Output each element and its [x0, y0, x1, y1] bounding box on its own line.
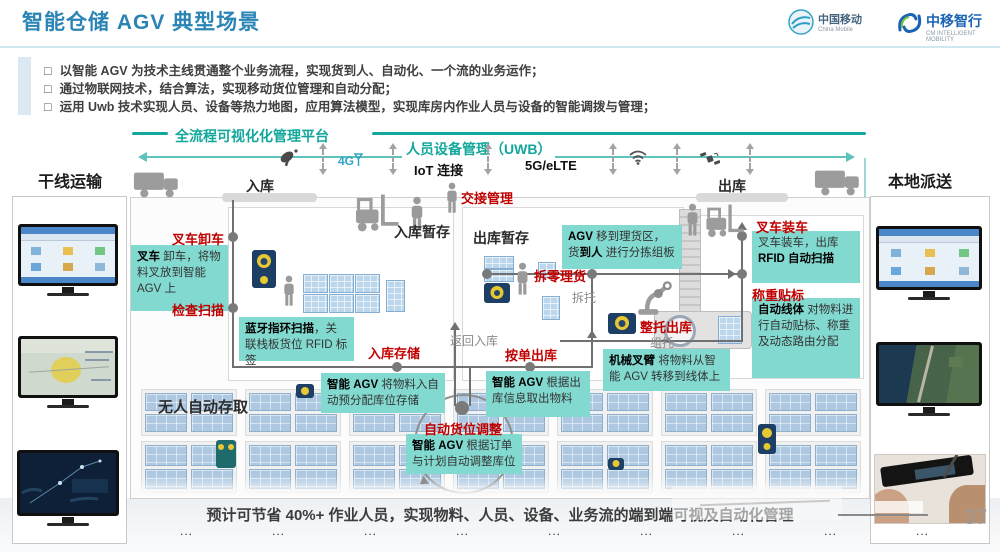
callout-robot-arm: 机械叉臂 将物料从智能 AGV 转移到线体上 [603, 349, 730, 391]
page-title: 智能仓储 AGV 典型场景 [22, 6, 260, 36]
flow-arrow-right [728, 269, 736, 279]
platform-line-left [132, 132, 168, 135]
checkbox-icon: □ [44, 100, 52, 114]
dashed-link-arrow [483, 143, 493, 175]
dock-ellipsis: ... [916, 524, 929, 538]
auto-storage-label: 无人自动存取 [158, 396, 248, 417]
agv-icon [296, 384, 314, 398]
china-mobile-logo-text: 中国移动 China Mobile [818, 11, 862, 33]
flow-node-dot [228, 303, 238, 313]
callout-bluetooth-scan: 蓝牙指环扫描，关联栈板货位 RFID 标签 [239, 317, 354, 361]
agv-robot-icon [216, 440, 236, 468]
shelf-module [661, 389, 757, 436]
monitor-appointment-dispatch[interactable] [876, 226, 982, 290]
callout-agv-pick: AGV 移到理货区，货到人 进行分拣组板 [562, 225, 682, 269]
screen-app-preview [21, 227, 115, 283]
left-section-title: 干线运输 [38, 168, 102, 192]
agv-icon [484, 283, 510, 303]
dock-ellipsis: ... [456, 524, 469, 538]
forklift-unload-label: 叉车卸车 [172, 229, 224, 248]
net-label: 5G/eLTE [525, 158, 577, 173]
flow-line [232, 366, 592, 368]
flow-arrow-up [450, 322, 460, 330]
callout-agv-adjust: 智能 AGV 根据订单与计划自动调整库位 [406, 434, 522, 474]
flow-node-dot [228, 232, 238, 242]
satellite-dish-icon [278, 148, 300, 173]
outbound-dock [696, 193, 788, 202]
forklift-icon [702, 202, 746, 238]
agv-icon [252, 250, 276, 288]
pallet [355, 274, 380, 293]
cm-intelligent-logo-text: 中移智行 CM INTELLIGENT MOBILITY [926, 11, 1000, 43]
watermark-dash [838, 514, 928, 516]
flow-line [232, 200, 234, 367]
bullet-accent-bar [18, 57, 31, 115]
bullet-line-2: □通过物联网技术，结合算法，实现移动货位管理和自动分配； [44, 78, 397, 97]
person-icon [444, 182, 460, 214]
dock-ellipsis: ... [364, 524, 377, 538]
checkbox-icon: □ [44, 64, 52, 78]
person-icon [514, 260, 531, 298]
callout-agv-out: 智能 AGV 根据出库信息取出物料 [486, 371, 590, 417]
monitor-risk-alert[interactable] [18, 336, 118, 398]
person-icon [281, 274, 297, 308]
auto-adjust-label: 自动货位调整 [424, 419, 502, 438]
screen-app-preview [879, 229, 979, 287]
iot-label: IoT 连接 [414, 160, 463, 179]
dashed-link-arrow [745, 143, 755, 175]
handover-label: 交接管理 [461, 188, 513, 207]
dock-ellipsis: ... [732, 524, 745, 538]
callout-load-scan: 叉车装车，出库RFID 自动扫描 [752, 231, 860, 283]
truck-icon [814, 166, 862, 196]
inbound-dock [222, 193, 317, 202]
return-in-label: 返回入库 [450, 332, 498, 349]
pallet [329, 294, 354, 313]
flow-arrow-up [587, 330, 597, 338]
callout-auto-line: 自动线体 对物料进行自动贴标、称重及动态路由分配 [752, 298, 860, 378]
pallet [542, 296, 560, 320]
dashed-link-arrow [608, 143, 618, 175]
monitor-stand [18, 287, 118, 296]
pallet [484, 256, 514, 269]
truck-icon [133, 168, 181, 198]
flow-node-dot [737, 269, 747, 279]
monitor-en-route-tracking[interactable] [876, 342, 982, 406]
rack [386, 280, 405, 312]
dashed-link-arrow [318, 143, 328, 175]
dock-ellipsis: ... [824, 524, 837, 538]
monitor-stand [17, 517, 119, 526]
pallet [329, 274, 354, 293]
outbound-staging-label: 出库暂存 [473, 228, 529, 248]
page-number: 37 [964, 506, 987, 530]
callout-agv-in: 智能 AGV 将物料入自动预分配库位存储 [321, 373, 445, 413]
dock-ellipsis: ... [640, 524, 653, 538]
full-out-label: 整托出库 [640, 317, 692, 336]
monitor-appointment-delivery[interactable] [18, 224, 118, 286]
flow-line [469, 366, 471, 406]
flow-node-dot [587, 269, 597, 279]
uwb-arrow-right [846, 152, 855, 162]
dock-ellipsis: ... [548, 524, 561, 538]
agv-icon [608, 458, 624, 470]
split-pick-label: 拆零理货 [534, 266, 586, 285]
pallet [355, 294, 380, 313]
header-divider [0, 46, 1000, 48]
right-section-title: 本地派送 [888, 168, 952, 192]
flow-node-dot [482, 269, 492, 279]
platform-title: 全流程可视化化管理平台 [175, 126, 329, 146]
pallet [303, 294, 328, 313]
cm-intelligent-logo-icon [896, 10, 923, 36]
order-out-label: 按单出库 [505, 345, 557, 364]
uwb-title: 人员设备管理（UWB） [402, 139, 555, 159]
shelf-module [765, 389, 861, 436]
agv-icon [758, 424, 776, 454]
person-icon [684, 203, 701, 237]
platform-line-right [372, 132, 866, 135]
satellite-icon [700, 150, 720, 173]
flow-line [741, 230, 743, 342]
uwb-arrow-left [138, 152, 147, 162]
screen-map-preview [21, 339, 115, 395]
agv-icon [608, 313, 636, 334]
dock-ellipsis: ... [180, 524, 193, 538]
screen-satellite-preview [879, 345, 979, 403]
bullet-line-1: □以智能 AGV 为技术主线贯通整个业务流程，实现货到人、自动化、一个流的业务运… [44, 60, 544, 79]
china-mobile-logo-icon [788, 9, 814, 35]
inbound-staging-label: 入库暂存 [394, 222, 450, 242]
monitor-stand [876, 291, 982, 300]
dashed-link-arrow [672, 143, 682, 175]
weigh-label-label: 称重贴标 [752, 285, 804, 304]
check-scan-label: 检查扫描 [172, 300, 224, 319]
in-store-label: 入库存储 [368, 343, 420, 362]
screen-darkmap-preview [20, 453, 116, 513]
dock-ellipsis: ... [272, 524, 285, 538]
bullet-line-3: □运用 Uwb 技术实现人员、设备等热力地图，应用算法模型，实现库房内作业人员与… [44, 96, 655, 115]
monitor-stand [18, 399, 118, 408]
robot-arm-icon [636, 280, 674, 316]
flow-node-dot [392, 362, 402, 372]
dashed-link-arrow [388, 143, 398, 175]
slide: 智能仓储 AGV 典型场景 中国移动 China Mobile 中移智行 CM … [0, 0, 1000, 552]
load-truck-label: 叉车装车 [756, 217, 808, 236]
monitor-transport-visual[interactable] [17, 450, 119, 516]
checkbox-icon: □ [44, 82, 52, 96]
pallet [303, 274, 328, 293]
break-pallet-label: 拆托 [572, 289, 596, 306]
wifi-icon [628, 149, 648, 170]
flow-node-dot [455, 401, 469, 415]
antenna-4g-icon: 4G [338, 153, 363, 168]
monitor-stand [876, 407, 982, 416]
